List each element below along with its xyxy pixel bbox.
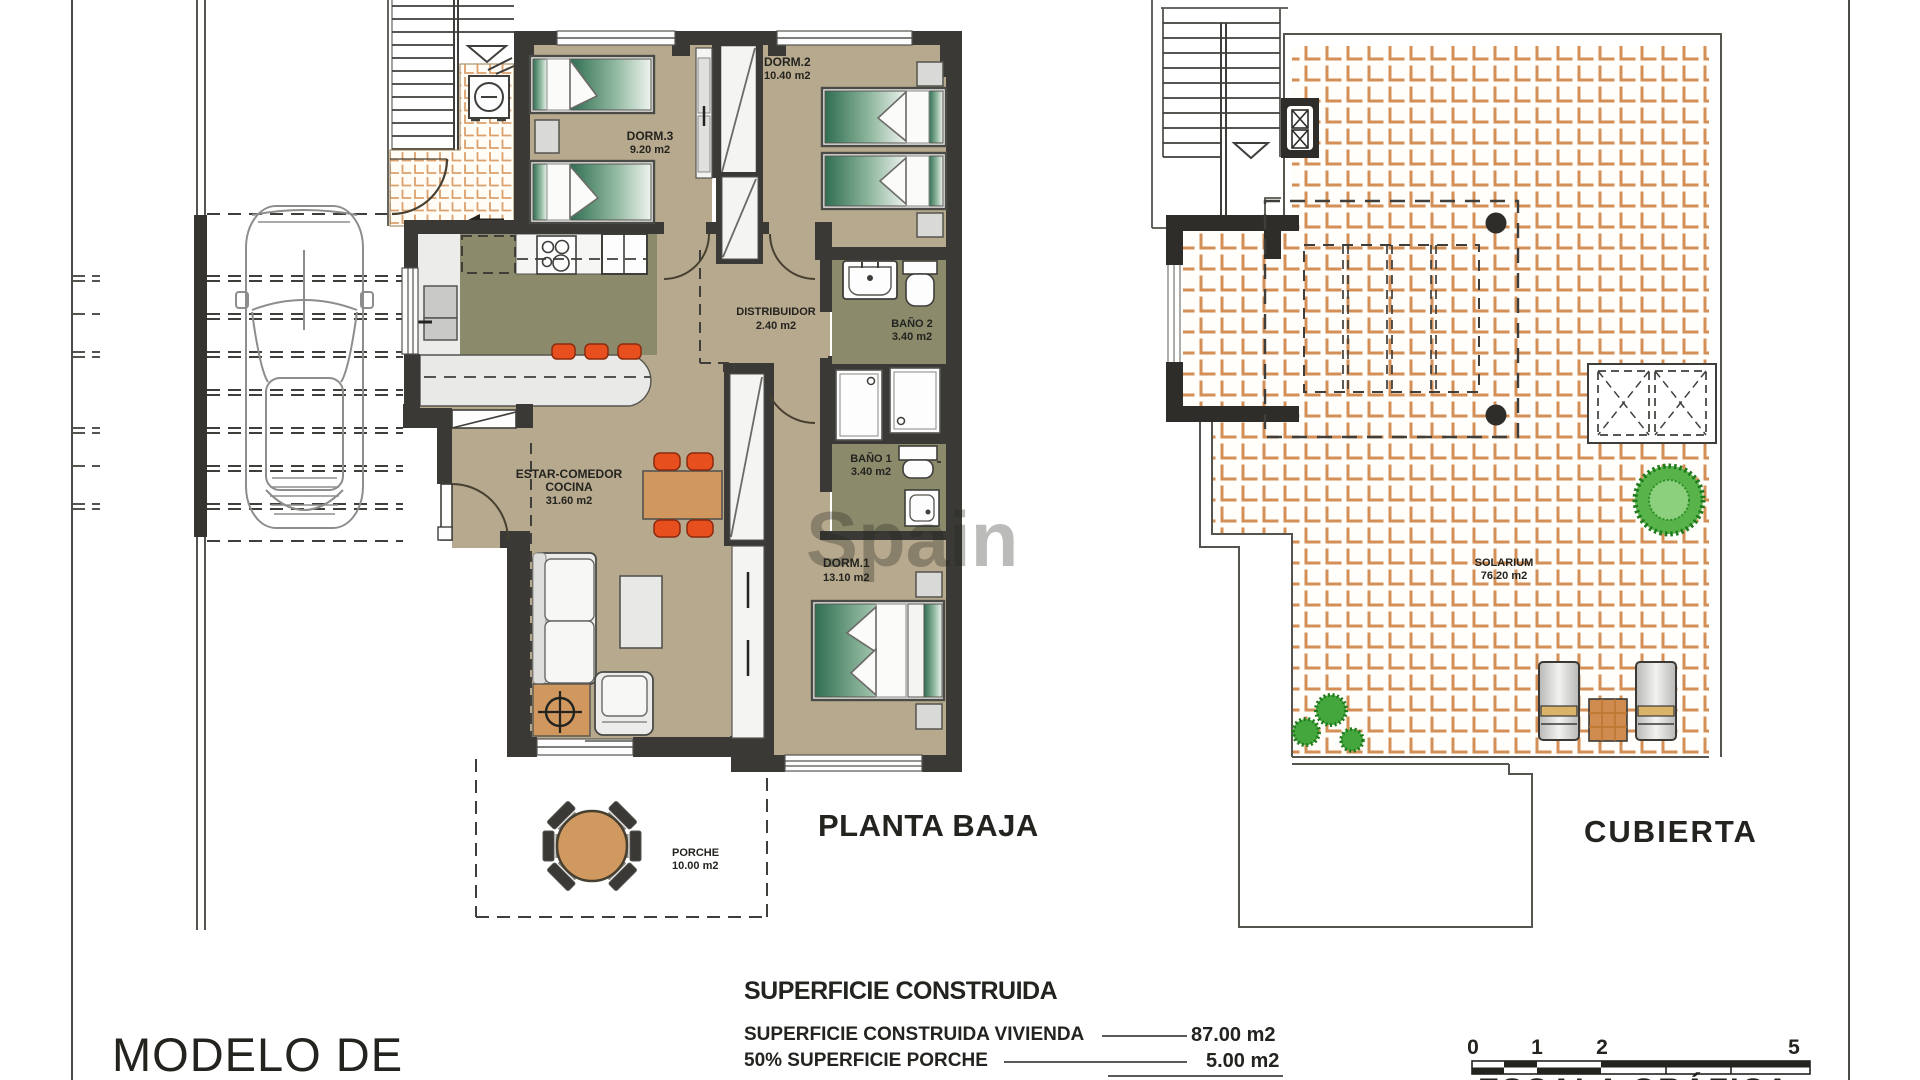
svg-text:87.00 m2: 87.00 m2: [1191, 1024, 1276, 1046]
svg-text:2.40 m2: 2.40 m2: [756, 320, 796, 332]
svg-text:5: 5: [1788, 1036, 1800, 1059]
svg-text:PLANTA BAJA: PLANTA BAJA: [818, 808, 1039, 843]
svg-text:COCINA: COCINA: [545, 480, 593, 494]
svg-text:10.00 m2: 10.00 m2: [672, 860, 718, 872]
svg-text:10.40 m2: 10.40 m2: [764, 70, 810, 82]
svg-text:1: 1: [1531, 1036, 1543, 1059]
svg-text:2: 2: [1596, 1036, 1608, 1059]
svg-text:ESTAR-COMEDOR: ESTAR-COMEDOR: [516, 467, 623, 481]
svg-text:CUBIERTA: CUBIERTA: [1584, 814, 1758, 849]
svg-text:BAÑO 1: BAÑO 1: [850, 452, 892, 465]
svg-text:SUPERFICIE CONSTRUIDA VIVIENDA: SUPERFICIE CONSTRUIDA VIVIENDA: [744, 1024, 1085, 1045]
svg-text:3.40 m2: 3.40 m2: [851, 466, 891, 478]
svg-text:ESCALA GRÁFICA: ESCALA GRÁFICA: [1478, 1072, 1791, 1080]
svg-text:DISTRIBUIDOR: DISTRIBUIDOR: [736, 306, 816, 318]
svg-text:76.20 m2: 76.20 m2: [1481, 570, 1527, 582]
svg-text:31.60 m2: 31.60 m2: [546, 495, 592, 507]
svg-text:DORM.3: DORM.3: [627, 129, 674, 143]
svg-text:9.20 m2: 9.20 m2: [630, 144, 670, 156]
svg-text:PORCHE: PORCHE: [672, 847, 719, 859]
svg-text:Spain: Spain: [806, 495, 1018, 583]
svg-text:MODELO DE: MODELO DE: [112, 1028, 403, 1080]
svg-text:DORM.2: DORM.2: [764, 55, 811, 69]
svg-text:50% SUPERFICIE PORCHE: 50% SUPERFICIE PORCHE: [744, 1050, 988, 1071]
svg-text:3.40 m2: 3.40 m2: [892, 331, 932, 343]
svg-text:0: 0: [1467, 1036, 1479, 1059]
svg-text:SOLARIUM: SOLARIUM: [1475, 557, 1534, 569]
svg-text:5.00 m2: 5.00 m2: [1206, 1050, 1279, 1072]
svg-text:SUPERFICIE CONSTRUIDA: SUPERFICIE CONSTRUIDA: [744, 977, 1058, 1005]
svg-text:BAÑO 2: BAÑO 2: [891, 317, 933, 330]
